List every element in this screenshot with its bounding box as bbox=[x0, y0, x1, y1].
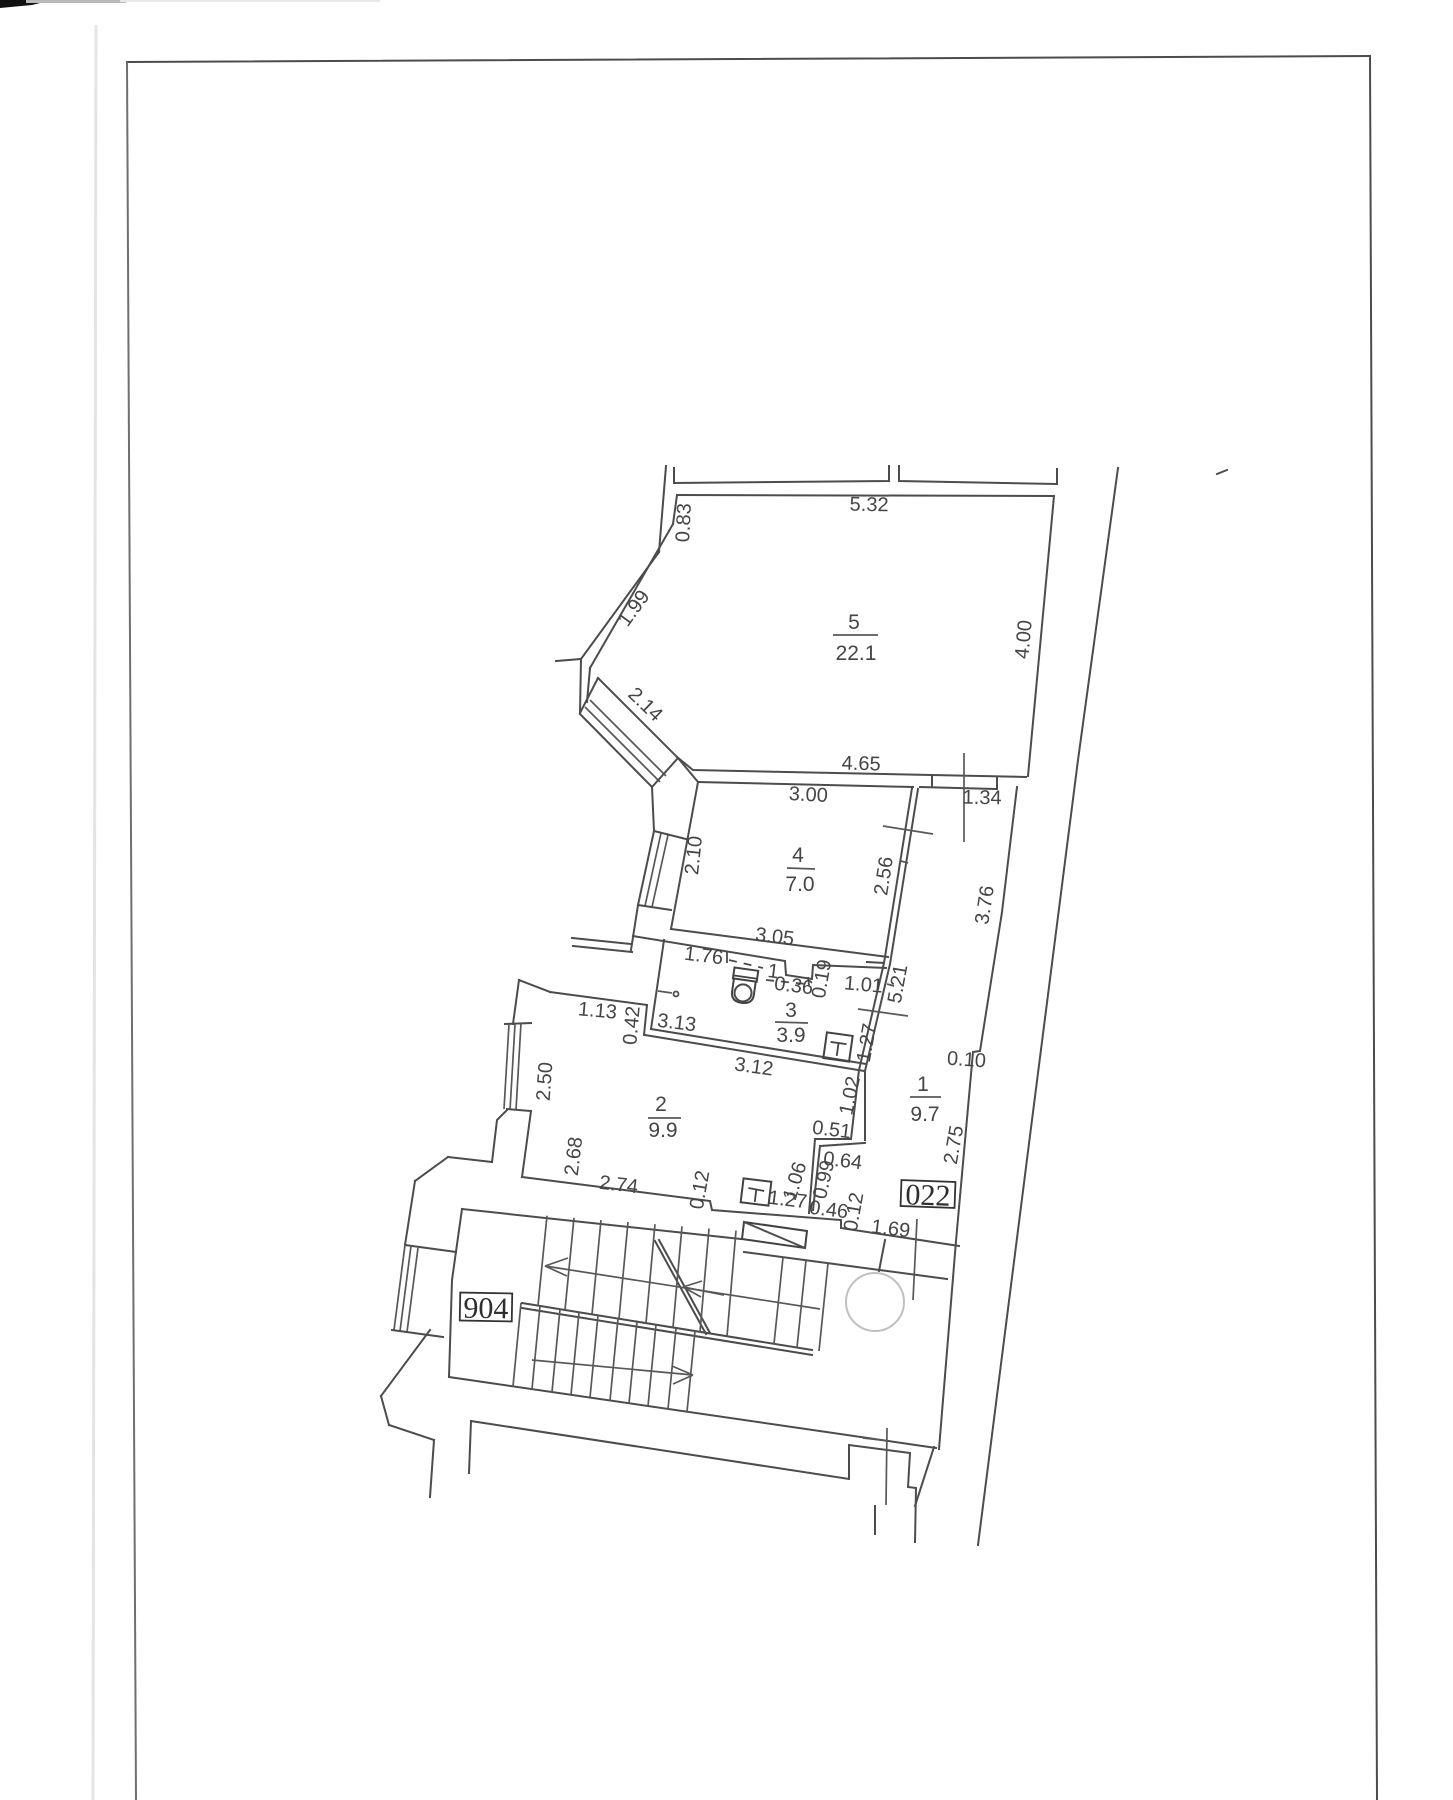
svg-text:1.76: 1.76 bbox=[683, 943, 724, 970]
svg-text:4.00: 4.00 bbox=[1011, 619, 1036, 660]
svg-text:1.13: 1.13 bbox=[577, 998, 618, 1023]
svg-text:1.69: 1.69 bbox=[870, 1216, 911, 1243]
svg-text:904: 904 bbox=[463, 1292, 509, 1326]
svg-text:0.51: 0.51 bbox=[811, 1117, 852, 1144]
svg-text:1.34: 1.34 bbox=[962, 787, 1001, 810]
svg-text:022: 022 bbox=[905, 1178, 951, 1213]
svg-text:3: 3 bbox=[785, 999, 797, 1022]
svg-text:2.50: 2.50 bbox=[533, 1061, 558, 1101]
svg-text:7.0: 7.0 bbox=[785, 873, 814, 896]
svg-text:4: 4 bbox=[792, 844, 804, 867]
svg-text:9.9: 9.9 bbox=[648, 1119, 677, 1142]
svg-text:5.32: 5.32 bbox=[849, 494, 888, 517]
svg-text:5: 5 bbox=[848, 611, 860, 634]
svg-text:0.83: 0.83 bbox=[672, 503, 696, 543]
svg-text:3.13: 3.13 bbox=[656, 1010, 697, 1037]
svg-text:3.05: 3.05 bbox=[754, 924, 795, 951]
svg-text:2: 2 bbox=[655, 1093, 667, 1116]
svg-text:2.74: 2.74 bbox=[598, 1172, 639, 1199]
svg-text:2.68: 2.68 bbox=[561, 1136, 588, 1177]
svg-text:4.65: 4.65 bbox=[841, 752, 881, 775]
svg-text:1.01: 1.01 bbox=[843, 972, 884, 997]
svg-text:0.10: 0.10 bbox=[946, 1048, 986, 1073]
svg-text:3.9: 3.9 bbox=[776, 1024, 805, 1047]
svg-text:9.7: 9.7 bbox=[910, 1103, 939, 1126]
svg-text:22.1: 22.1 bbox=[836, 642, 877, 665]
svg-text:3.00: 3.00 bbox=[788, 783, 828, 807]
svg-text:2.10: 2.10 bbox=[681, 835, 707, 876]
svg-text:1: 1 bbox=[917, 1073, 929, 1096]
svg-text:0.42: 0.42 bbox=[619, 1005, 644, 1046]
